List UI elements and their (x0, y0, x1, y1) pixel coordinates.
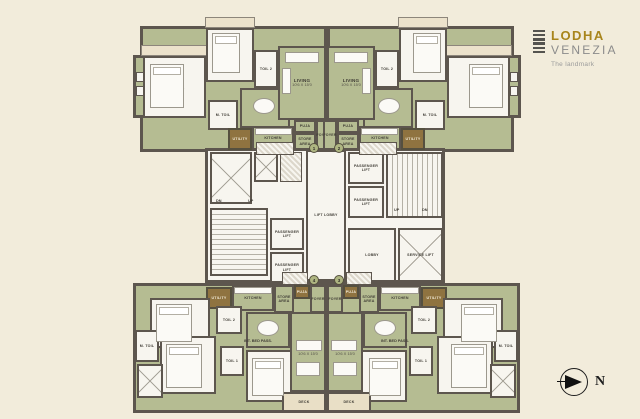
ac-ledge (141, 45, 207, 56)
room-m-toil: M. TOIL (494, 330, 518, 362)
bed-icon (413, 33, 441, 73)
room-deck: DECK (282, 392, 326, 412)
bed-icon (212, 33, 240, 73)
dining-table-icon (378, 98, 400, 114)
passenger-lift: PASSENGER LIFT (348, 186, 384, 218)
room-toil2: TOIL 2 (375, 50, 399, 88)
bed-icon (166, 344, 202, 388)
room-puja: PUJA (294, 285, 310, 299)
bed-icon (461, 304, 497, 342)
room-toil2: TOIL 2 (216, 306, 242, 334)
bed-icon (150, 64, 184, 108)
sofa-icon (331, 340, 357, 351)
ac-ledge (446, 45, 512, 56)
duct-icon (346, 272, 372, 285)
floor-plan-canvas: BED 210'0 X 11'3 M. BED11'0 X 10'0 TOIL … (0, 0, 640, 419)
shaft-icon (137, 364, 163, 398)
room-m-toil: M. TOIL (415, 100, 445, 130)
stair-dn-label: DN (422, 208, 427, 212)
passenger-lift: PASSENGER LIFT (270, 218, 304, 250)
flat-number-4: 4 (309, 275, 319, 285)
balcony-tick-icon (510, 86, 518, 96)
passage-label: INT. BED PASS. (365, 339, 425, 343)
sofa-icon (296, 340, 322, 351)
kitchen-counter-icon (234, 287, 272, 294)
coffee-table-icon (296, 362, 320, 376)
passage-label: INT. BED PASS. (228, 339, 288, 343)
sofa-icon (282, 68, 291, 94)
room-puja: PUJA (337, 120, 359, 133)
shaft-icon (210, 152, 252, 204)
compass-circle-icon (560, 368, 588, 396)
north-compass: N (560, 368, 605, 396)
duct-icon (256, 142, 294, 155)
flat-number-1: 1 (309, 143, 319, 153)
passenger-lift: PASSENGER LIFT (348, 152, 384, 184)
lift-lobby: LIFT LOBBY (306, 150, 346, 281)
shaft-icon (490, 364, 516, 398)
room-toil1: TOIL 1 (409, 346, 433, 376)
room-puja: PUJA (343, 285, 359, 299)
bed-icon (451, 344, 487, 388)
duct-icon (359, 142, 397, 155)
room-toil2: TOIL 2 (254, 50, 278, 88)
room-m-toil: M. TOIL (208, 100, 238, 130)
room-living: LIVING10'6 X 15'0 (327, 312, 363, 392)
stair-up-label: UP (394, 208, 399, 212)
dining-table-icon (253, 98, 275, 114)
bed-icon (156, 304, 192, 342)
brand-name-venezia: VENEZIA (551, 44, 618, 56)
room-toil2: TOIL 2 (411, 306, 437, 334)
sofa-icon (362, 68, 371, 94)
staircase-left (210, 208, 268, 276)
service-lift: SERVICE LIFT (398, 228, 443, 282)
room-store: STORE AREA (274, 285, 294, 313)
bed-icon (469, 64, 503, 108)
brand-name-lodha: LODHA (551, 29, 618, 42)
room-store: STORE AREA (359, 285, 379, 313)
room-utility: UTILITY (228, 128, 252, 150)
room-utility: UTILITY (401, 128, 425, 150)
flat-number-3: 3 (334, 275, 344, 285)
coffee-table-icon (333, 362, 357, 376)
room-foyer: FOYER (310, 285, 326, 313)
room-living: LIVING10'6 X 15'0 (290, 312, 326, 392)
duct-icon (282, 272, 308, 285)
room-deck: DECK (327, 392, 371, 412)
room-foyer: FOYER (327, 285, 343, 313)
balcony-tick-icon (510, 72, 518, 82)
sofa-icon (334, 52, 368, 63)
north-arrow-icon (565, 375, 582, 389)
lodha-lines-icon (533, 30, 545, 53)
dining-table-icon (374, 320, 396, 336)
balcony-tick-icon (136, 86, 144, 96)
duct-icon (280, 152, 302, 182)
brand-logo: LODHA VENEZIA The landmark (533, 29, 618, 68)
bed-icon (369, 358, 401, 396)
flat-number-2: 2 (334, 143, 344, 153)
kitchen-counter-icon (255, 128, 292, 135)
dining-table-icon (257, 320, 279, 336)
sofa-icon (285, 52, 319, 63)
balcony-tick-icon (136, 72, 144, 82)
ac-ledge (205, 17, 255, 28)
stair-dn-label: DN (216, 199, 221, 203)
kitchen-counter-icon (381, 287, 419, 294)
shaft-icon (254, 152, 278, 182)
bed-icon (252, 358, 284, 396)
kitchen-counter-icon (361, 128, 398, 135)
brand-tagline: The landmark (551, 61, 618, 68)
ac-ledge (398, 17, 448, 28)
room-puja: PUJA (294, 120, 316, 133)
stair-up-label: UP (248, 199, 253, 203)
north-label: N (595, 374, 605, 390)
room-toil1: TOIL 1 (220, 346, 244, 376)
